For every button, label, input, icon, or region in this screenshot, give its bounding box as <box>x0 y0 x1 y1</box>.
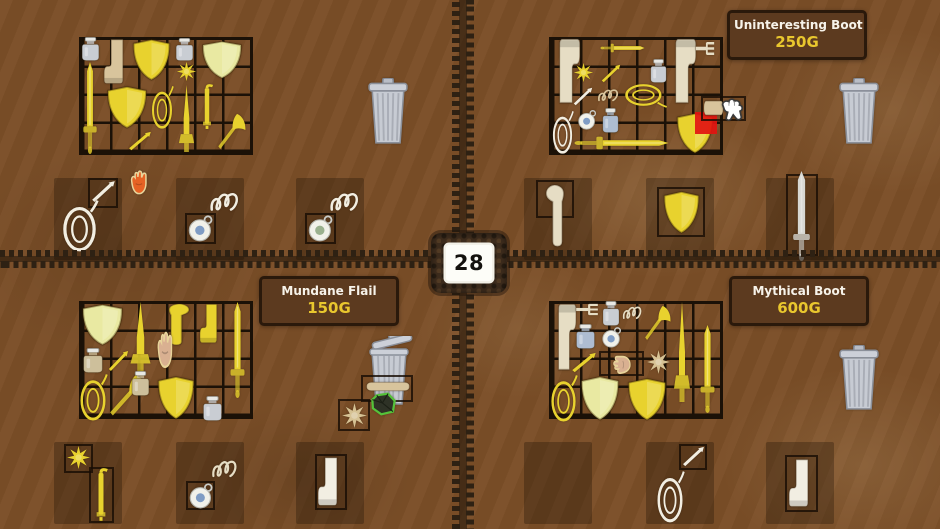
item-needle[interactable] <box>570 351 598 374</box>
item-shield[interactable] <box>660 189 703 235</box>
item-lasso[interactable] <box>60 199 99 253</box>
item-whistle[interactable] <box>601 326 623 348</box>
item-shield[interactable] <box>624 376 670 422</box>
item-sword[interactable] <box>80 62 100 154</box>
tooltip-title: Mythical Boot <box>736 284 862 299</box>
item-lasso[interactable] <box>655 470 685 524</box>
round-badge: 28 <box>431 233 507 293</box>
item-squiggle[interactable] <box>211 456 240 481</box>
item-lasso[interactable] <box>551 110 574 155</box>
item-lasso[interactable] <box>78 373 108 422</box>
item-hook[interactable] <box>540 182 578 248</box>
item-jar[interactable] <box>172 38 197 61</box>
item-fork[interactable] <box>574 303 600 316</box>
item-mace[interactable] <box>341 402 368 429</box>
item-boot[interactable] <box>667 37 697 105</box>
trash-can[interactable] <box>838 78 880 145</box>
item-squiggle[interactable] <box>622 303 644 322</box>
item-dagger[interactable] <box>128 302 153 373</box>
item-shield[interactable] <box>198 39 246 80</box>
item-shield[interactable] <box>78 302 127 347</box>
tooltip-price: 250G <box>734 33 860 51</box>
trash-can[interactable] <box>838 345 880 411</box>
game-stage: 28 Uninteresting Boot 250G Mundane Flail… <box>0 0 940 529</box>
item-jar[interactable] <box>599 108 622 133</box>
tooltip-title: Mundane Flail <box>266 284 392 299</box>
item-boot[interactable] <box>199 303 224 344</box>
item-sword[interactable] <box>601 42 645 55</box>
item-boot[interactable] <box>103 38 131 85</box>
item-lasso[interactable] <box>150 85 174 130</box>
item-needle[interactable] <box>600 63 622 84</box>
item-needle[interactable] <box>127 130 153 152</box>
item-flail[interactable] <box>91 468 111 522</box>
tooltip-price: 150G <box>266 299 392 317</box>
item-lasso[interactable] <box>624 82 668 108</box>
item-squiggle[interactable] <box>209 188 242 215</box>
item-jar[interactable] <box>599 301 623 326</box>
item-dagger[interactable] <box>177 85 196 152</box>
item-squiggle[interactable] <box>597 86 621 104</box>
tooltip-uninteresting-boot: Uninteresting Boot 250G <box>727 10 867 60</box>
item-jar[interactable] <box>79 348 107 373</box>
item-sword[interactable] <box>575 134 669 153</box>
item-flail[interactable] <box>198 84 216 130</box>
item-mace[interactable] <box>646 349 671 375</box>
tooltip-price: 600G <box>736 299 862 317</box>
item-hand[interactable] <box>154 328 178 372</box>
item-whistle[interactable] <box>307 214 335 242</box>
item-fork[interactable] <box>694 41 716 56</box>
tooltip-mythical-boot: Mythical Boot 600G <box>729 276 869 326</box>
item-whistle[interactable] <box>188 482 215 509</box>
item-boot[interactable] <box>788 458 816 508</box>
item-mace[interactable] <box>66 445 91 470</box>
item-mace[interactable] <box>573 62 594 83</box>
item-whistle[interactable] <box>577 109 598 130</box>
item-needle[interactable] <box>681 445 706 468</box>
item-sword[interactable] <box>227 302 248 398</box>
item-boot[interactable] <box>317 456 345 507</box>
cursor-glove-icon <box>716 96 748 124</box>
item-mace[interactable] <box>176 61 197 82</box>
item-jar[interactable] <box>78 37 103 61</box>
item-axe[interactable] <box>643 303 672 343</box>
item-sword[interactable] <box>789 171 814 261</box>
item-hand[interactable] <box>127 168 153 197</box>
item-shield[interactable] <box>577 374 623 422</box>
item-whistle[interactable] <box>187 214 215 242</box>
item-sword[interactable] <box>697 325 718 413</box>
shop-slot[interactable] <box>524 442 592 524</box>
round-counter: 28 <box>446 245 492 281</box>
item-jar[interactable] <box>199 396 226 421</box>
item-shield[interactable] <box>129 37 174 82</box>
tooltip-mundane-flail: Mundane Flail 150G <box>259 276 399 326</box>
item-shield[interactable] <box>103 84 151 130</box>
item-squiggle[interactable] <box>329 188 362 215</box>
item-needle[interactable] <box>107 349 130 373</box>
round-number: 28 <box>454 251 484 275</box>
item-jar[interactable] <box>128 371 153 396</box>
item-slab[interactable] <box>366 382 411 392</box>
item-dagger[interactable] <box>672 302 692 402</box>
trash-can[interactable] <box>367 78 409 145</box>
item-lasso[interactable] <box>549 374 578 423</box>
item-shield[interactable] <box>154 374 198 421</box>
item-needle[interactable] <box>572 86 594 107</box>
tooltip-title: Uninteresting Boot <box>734 18 860 33</box>
item-jar[interactable] <box>572 324 599 349</box>
item-rock[interactable] <box>369 391 398 417</box>
item-axe[interactable] <box>216 111 247 152</box>
item-jar[interactable] <box>647 59 670 83</box>
